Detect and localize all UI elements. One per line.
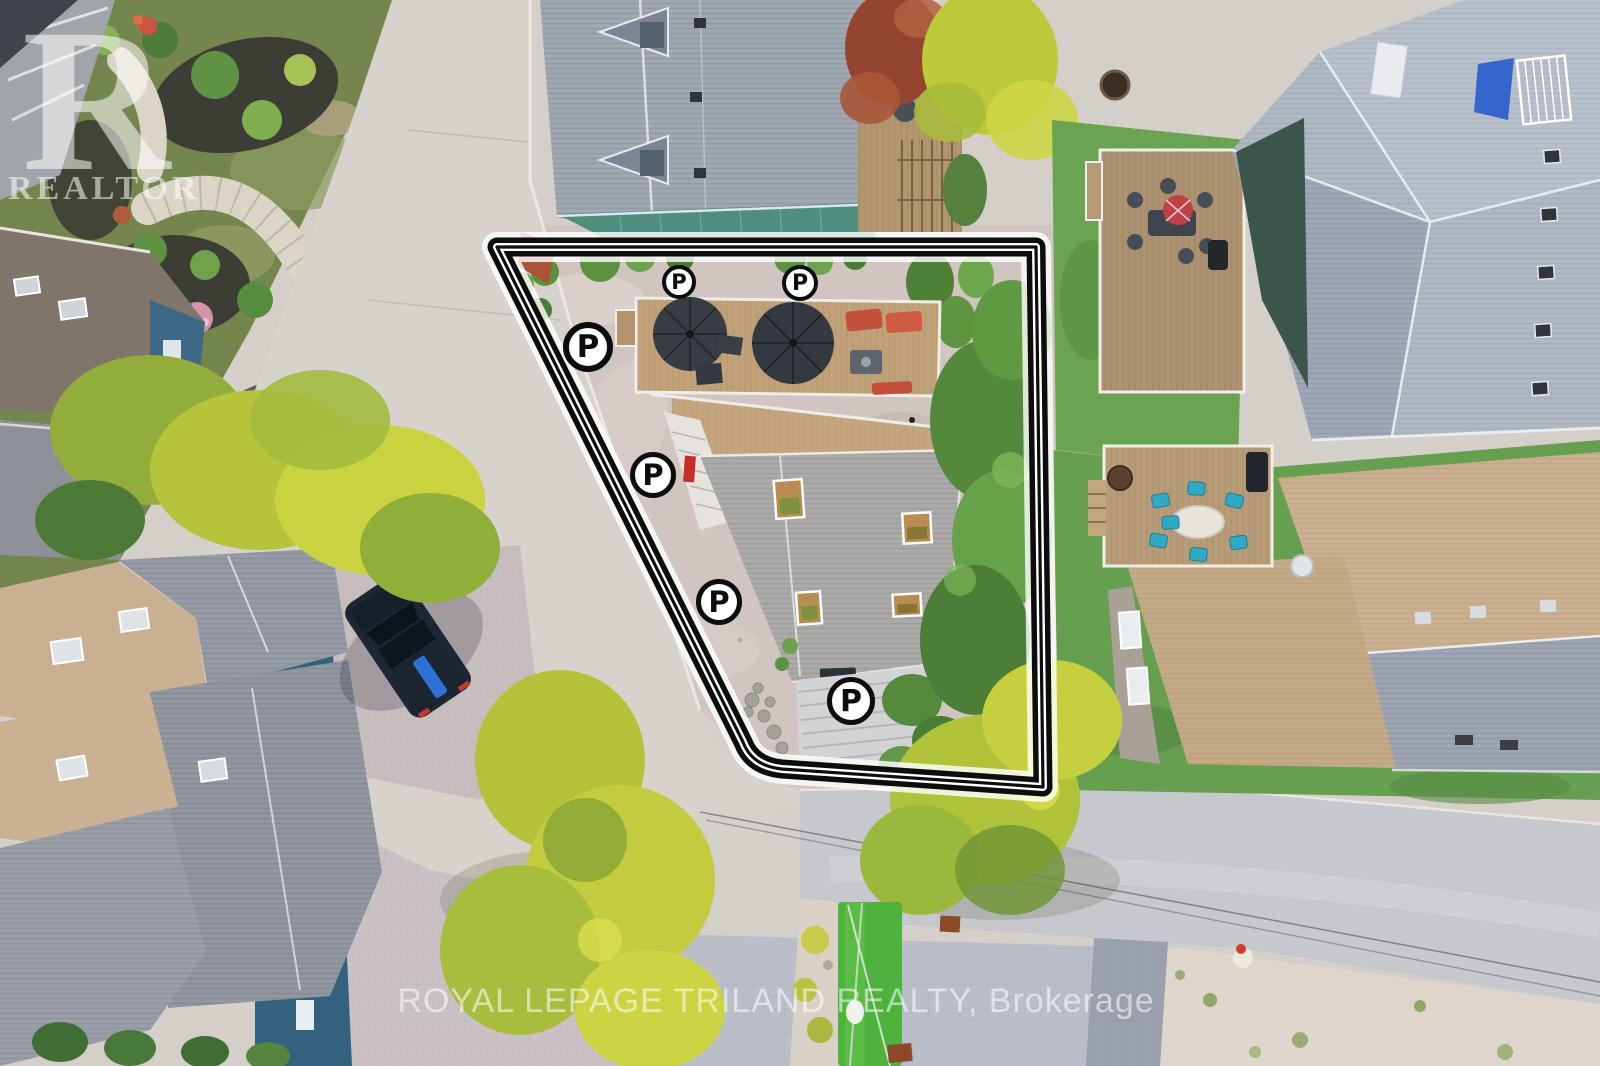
- subject-roof-deck: [616, 297, 940, 396]
- patio-umbrella: [752, 302, 834, 384]
- patio-umbrella: [653, 297, 727, 371]
- aerial-photo-image: PPPPPP R REALTOR ROYAL LEPAGE TRILAND RE…: [0, 0, 1600, 1066]
- east-deck-blue-chairs: [1088, 446, 1272, 566]
- north-house: [540, 0, 884, 244]
- aerial-photo-scene: [0, 0, 1600, 1066]
